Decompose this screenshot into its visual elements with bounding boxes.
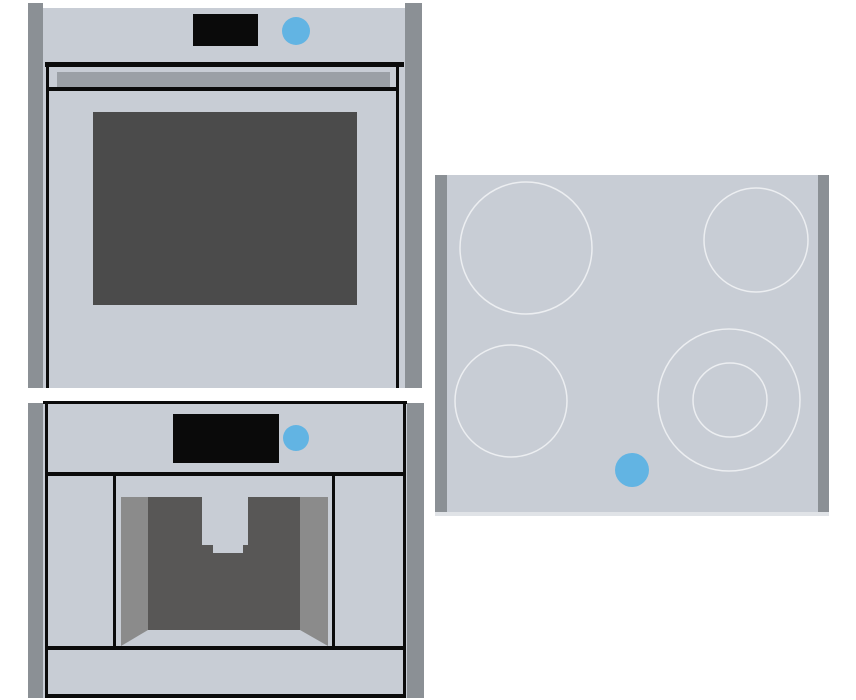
oven-door-top-line	[45, 62, 404, 67]
oven-left-side-panel	[28, 3, 43, 388]
coffee-spout	[202, 497, 248, 545]
cooktop-right-trim	[818, 175, 829, 512]
coffee-divider-right	[332, 476, 335, 650]
coffee-outline-left	[45, 404, 48, 698]
oven-handle-bottom-line	[49, 87, 396, 91]
appliance-illustration-canvas	[0, 0, 856, 700]
coffee-niche-right-wall	[300, 497, 328, 646]
cooktop-knob-button[interactable]	[615, 453, 649, 487]
cooktop-left-trim	[435, 175, 447, 512]
oven-door-left-border	[46, 67, 49, 388]
coffee-niche-left-wall	[121, 497, 148, 646]
coffee-knob-button[interactable]	[283, 425, 309, 451]
coffee-divider-left	[113, 476, 116, 650]
coffee-spout-tip	[213, 545, 243, 553]
oven-door-right-border	[396, 67, 399, 388]
coffee-bottom-divider-line	[48, 646, 403, 650]
oven-knob-button[interactable]	[282, 17, 310, 45]
coffee-outline-bottom	[45, 694, 406, 698]
coffee-panel-divider-line	[48, 472, 403, 476]
coffee-left-side-panel	[28, 403, 43, 698]
coffee-machine-illustration[interactable]	[28, 401, 424, 698]
coffee-display	[173, 414, 279, 463]
cooktop-bottom-edge	[435, 512, 829, 516]
coffee-right-side-panel	[407, 403, 424, 698]
coffee-outline-right	[403, 404, 406, 698]
oven-door-handle	[57, 72, 390, 87]
oven-door-window	[93, 112, 357, 305]
oven-display	[193, 14, 258, 46]
cooktop-illustration[interactable]	[435, 175, 829, 516]
oven-right-side-panel	[405, 3, 422, 388]
built-in-oven-illustration[interactable]	[28, 3, 422, 388]
coffee-outline-top	[43, 401, 407, 404]
